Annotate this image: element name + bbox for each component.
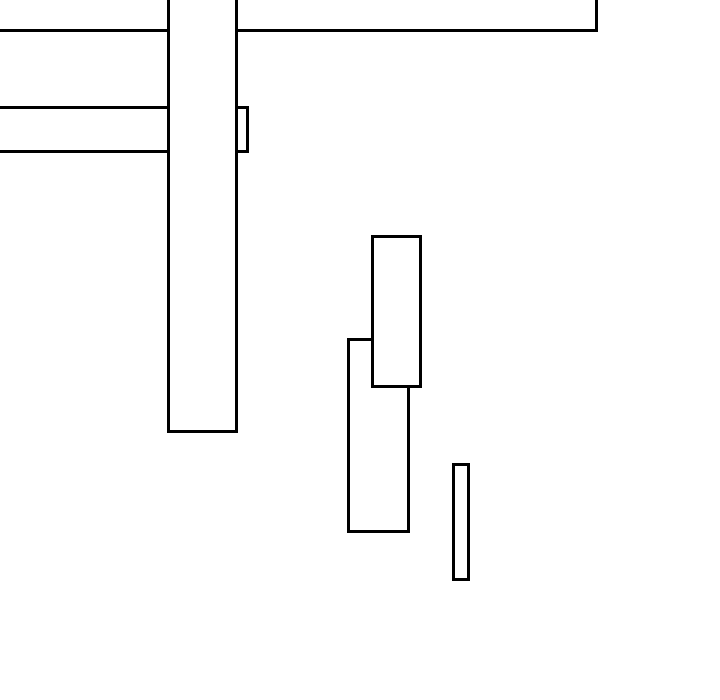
thin-vertical-rect: [452, 463, 470, 581]
diagram-canvas: [0, 0, 720, 700]
tall-vertical-bar: [167, 0, 238, 433]
top-banner-rect: [0, 0, 598, 32]
upper-middle-rect: [371, 235, 422, 388]
